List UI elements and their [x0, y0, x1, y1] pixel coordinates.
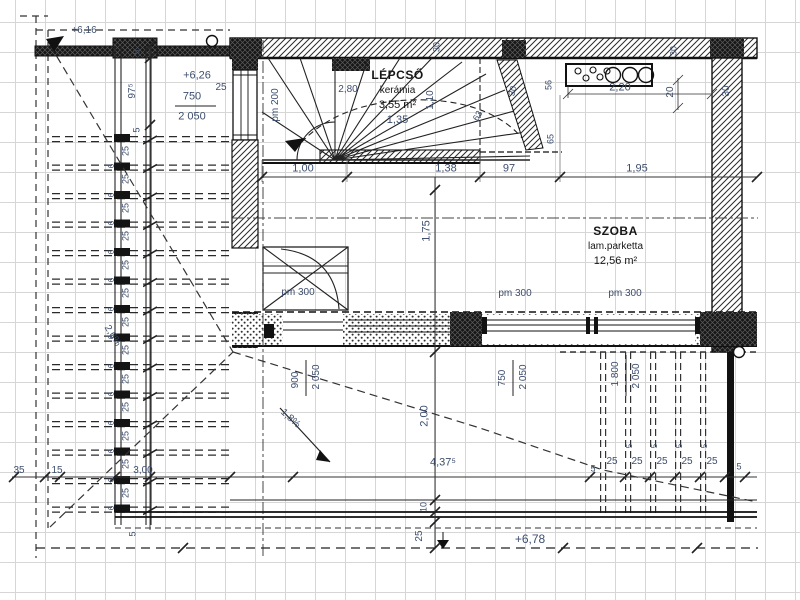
dimension-label: 5 [133, 49, 142, 54]
dimension-label: 30 [433, 42, 442, 52]
dimension-label: 6 [108, 364, 116, 368]
dimension-label: 10 [420, 502, 429, 512]
parapet-height-label: pm 300 [608, 289, 641, 299]
dimension-label: 30 [670, 46, 679, 56]
dimension-label: 5 [133, 127, 142, 132]
dimension-label: 25 [122, 288, 131, 298]
dimension-label: 25 [122, 431, 131, 441]
opening-size-label: 750 [183, 92, 201, 103]
dimension-label: 25 [631, 457, 642, 467]
dimension-label: 25 [415, 530, 425, 541]
dimension-label: 25 [122, 231, 131, 241]
level-label: +6,26 [183, 71, 211, 82]
dimension-label: 25 [681, 457, 692, 467]
dimension-label: 15 [51, 466, 62, 476]
dimension-label: 25 [215, 83, 226, 93]
dimension-label: 6 [108, 193, 116, 197]
dimension-label: 6 [108, 478, 116, 482]
dimension-label: 25 [122, 374, 131, 384]
level-label: +6,16 [71, 26, 96, 36]
dimension-label: 65 [547, 134, 556, 144]
dimension-label: 56 [545, 80, 554, 90]
dimension-label: 30 [507, 85, 518, 97]
dimension-label: 30 [722, 85, 732, 96]
slope-label: 1,8% [278, 408, 302, 431]
parapet-height-label: pm 300 [281, 288, 314, 298]
dimension-label: 97 [503, 164, 515, 175]
dimension-label: 5 [590, 465, 595, 474]
parapet-height-label: pm 300 [498, 289, 531, 299]
dimension-label: 25 [122, 459, 131, 469]
dimension-label: 25 [122, 402, 131, 412]
opening-size-label: 900 [291, 372, 301, 389]
dimension-label: 6 [108, 278, 116, 282]
dimension-label: 6 [108, 221, 116, 225]
room-name: LÉPCSŐ [350, 68, 445, 82]
dimension-label: 5 [701, 444, 709, 448]
dimension-label: 63 [472, 109, 485, 122]
dimension-label: 6 [108, 421, 116, 425]
dimension-label: 97⁵ [128, 83, 138, 98]
dimension-label: 6 [108, 250, 116, 254]
floor-plan-canvas: LÉPCSŐ kerámia 3,55 m² 1,35 SZOBA lam.pa… [0, 0, 800, 600]
opening-size-label: 2 050 [312, 364, 322, 389]
dimension-label: 20 [666, 86, 676, 97]
opening-size-label: 2 050 [178, 112, 206, 123]
slope-label: 2,6% [102, 324, 123, 349]
dimension-label: 6 [108, 392, 116, 396]
dimension-label: 5 [129, 531, 138, 536]
dimension-label: 5 [626, 444, 634, 448]
dimension-label: 25 [122, 203, 131, 213]
opening-size-label: 2 050 [632, 363, 642, 388]
szoba-room-label: SZOBA lam.parketta 12,56 m² [568, 224, 663, 267]
room-area: 12,56 m² [568, 255, 663, 267]
level-label: +6,78 [515, 533, 545, 545]
dimension-label: 25 [122, 488, 131, 498]
opening-size-label: 2 050 [519, 364, 529, 389]
dimension-label: 1,38 [435, 164, 456, 175]
opening-size-label: 750 [498, 370, 508, 387]
dimension-label: 4,37⁵ [430, 458, 456, 469]
parapet-height-label: pm 200 [271, 88, 281, 121]
dimension-label: 1,10 [426, 90, 436, 109]
dimension-label: 35 [13, 466, 24, 476]
dimension-label: 6 [108, 307, 116, 311]
dimension-label: 25 [122, 260, 131, 270]
dimension-label: 3,00 [133, 466, 152, 476]
dimension-label: 5 [676, 444, 684, 448]
dimension-label: 6 [108, 164, 116, 168]
dimension-label: 2,00 [420, 405, 431, 426]
dimension-label: 2,20 [609, 83, 630, 94]
dimension-label: 5 [651, 444, 659, 448]
dimension-label: 1,00 [292, 164, 313, 175]
opening-size-label: 1 800 [611, 361, 621, 386]
dimension-label: 5 [736, 463, 741, 472]
dimension-label: 25 [706, 457, 717, 467]
dimension-label: 6 [108, 506, 116, 510]
dimension-label: 1,95 [626, 164, 647, 175]
dimension-label: 1,75 [422, 220, 433, 241]
dimension-label: 25 [122, 345, 131, 355]
dimension-label: 25 [122, 146, 131, 156]
dimension-label: 25 [122, 317, 131, 327]
dimension-label: 25 [606, 457, 617, 467]
dimension-label: 25 [122, 174, 131, 184]
dimension-label: 6 [108, 449, 116, 453]
room-dim: 1,35 [350, 114, 445, 126]
dimension-label: 2,80 [338, 85, 357, 95]
room-name: SZOBA [568, 224, 663, 238]
dimension-label: 25 [656, 457, 667, 467]
room-finish: lam.parketta [568, 241, 663, 252]
